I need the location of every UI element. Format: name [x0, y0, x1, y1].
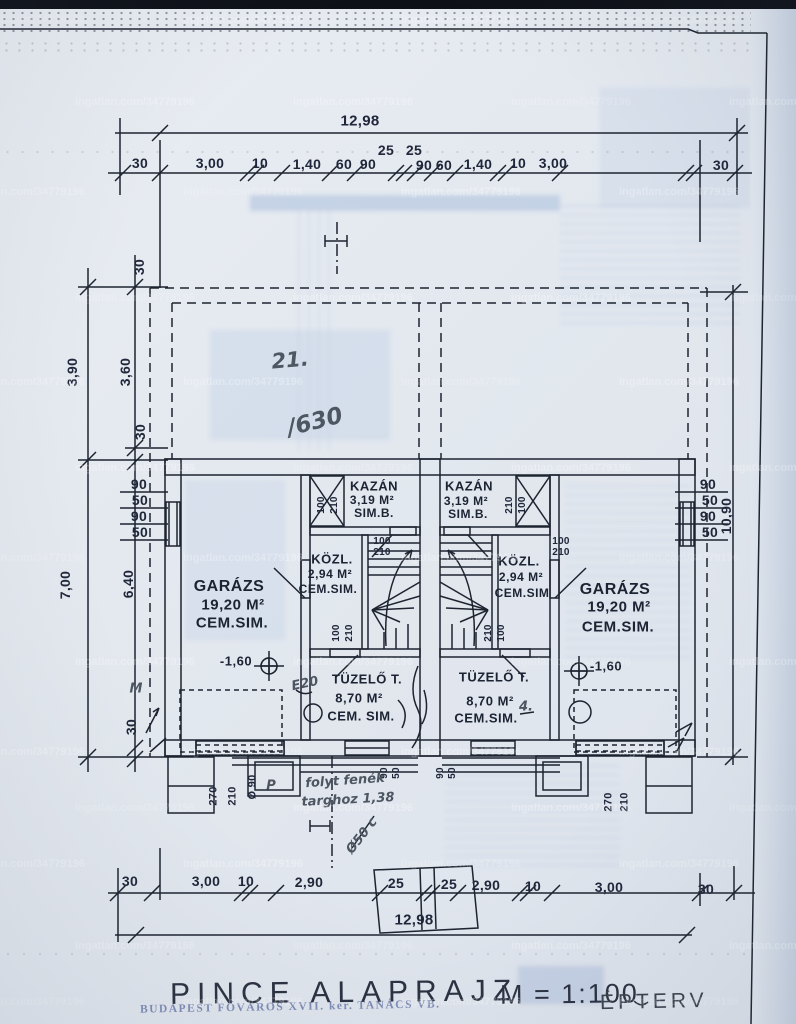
- dim-top: 10: [510, 156, 526, 170]
- dim-top: 10: [252, 156, 268, 170]
- dim-right-mini: 90: [700, 477, 716, 491]
- dim-left-inner: 30: [132, 259, 146, 275]
- room-garage-left-name: GARÁZS: [194, 579, 265, 595]
- room-garage-right-area: 19,20 M²: [587, 600, 650, 615]
- door-size: 100: [332, 624, 342, 642]
- room-kazan-left-area: 3,19 M²: [350, 494, 394, 506]
- dim-left-mini: 50: [132, 493, 148, 507]
- dim-top: 3,00: [539, 156, 567, 170]
- dim-top: 25: [406, 143, 422, 157]
- dim-bottom: 10: [238, 874, 254, 888]
- pencil-p-mark: P: [266, 779, 276, 794]
- plan-linework: [0, 0, 796, 1024]
- room-tuzelo-right-area: 8,70 M²: [466, 695, 514, 708]
- staircase-left: [368, 543, 420, 649]
- dim-top: 60: [436, 158, 452, 172]
- room-kozl-right-finish: CEM.SIM: [495, 587, 550, 599]
- door-size: 100: [497, 624, 507, 642]
- dim-left-mini: 90: [131, 477, 147, 491]
- door-size: 100: [518, 496, 528, 514]
- room-tuzelo-right-finish: CEM.SIM.: [454, 712, 517, 725]
- scan-fold-band: [0, 0, 796, 9]
- room-kozl-right-name: KÖZL.: [498, 555, 540, 568]
- dim-left-outer: 7,00: [58, 571, 72, 599]
- door-size: 100: [552, 537, 570, 547]
- room-tuzelo-right-name: TÜZELŐ T.: [459, 671, 529, 684]
- section-line-bottom: [310, 756, 332, 868]
- plot-number-note: 21.: [270, 346, 309, 373]
- dim-top: 1,40: [464, 157, 492, 171]
- garage-door-size: 270: [209, 786, 220, 805]
- level-marker-left: [254, 651, 284, 681]
- dim-top: 30: [132, 156, 148, 170]
- dim-left-mini: 50: [132, 525, 148, 539]
- door-size: 210: [373, 548, 391, 558]
- room-kozl-left-name: KÖZL.: [311, 553, 353, 566]
- blue-pen-marks: [668, 723, 692, 751]
- drawing-title: PINCE ALAPRAJZ: [170, 974, 518, 1012]
- dimension-left: [78, 255, 168, 772]
- dim-bottom-total: 12,98: [394, 913, 433, 928]
- dim-bottom: 25: [441, 877, 457, 891]
- room-kozl-left-area: 2,94 M²: [308, 568, 352, 580]
- dim-right-mini: 50: [702, 525, 718, 539]
- dim-bottom: 30: [698, 882, 714, 896]
- opening-diameter: Ø 90: [248, 774, 259, 799]
- garage-door-size: 210: [228, 786, 239, 805]
- room-kozl-right-area: 2,94 M²: [499, 571, 543, 583]
- level-garage-left: -1,60: [220, 655, 252, 668]
- dim-top: 60: [336, 157, 352, 171]
- door-size: 210: [505, 496, 515, 514]
- dim-bottom: 3,00: [595, 880, 623, 894]
- dim-bottom: 3,00: [192, 874, 220, 888]
- dim-left-mini: 90: [131, 509, 147, 523]
- dim-inner: 50: [448, 767, 458, 779]
- garage-door-size: 210: [620, 792, 631, 811]
- door-size: 210: [484, 624, 494, 642]
- dimension-bottom: [108, 848, 755, 943]
- room-tuzelo-left-area: 8,70 M²: [335, 692, 383, 705]
- dim-left-inner: 30: [133, 424, 147, 440]
- dim-bottom: 25: [388, 876, 404, 890]
- door-size: 210: [345, 624, 355, 642]
- door-size: 100: [373, 537, 391, 547]
- dim-left-outer: 3,90: [65, 358, 79, 386]
- pencil-four-mark: 4.: [519, 700, 533, 715]
- room-kazan-left-finish: SIM.B.: [354, 507, 394, 519]
- room-garage-left-finish: CEM.SIM.: [196, 616, 268, 631]
- dim-right-mini: 50: [702, 493, 718, 507]
- door-size: 100: [317, 496, 327, 514]
- dim-top: 1,40: [293, 157, 321, 171]
- upper-storey-dashed-outline: [150, 288, 707, 757]
- room-kazan-right-name: KAZÁN: [445, 480, 493, 493]
- garage-door-size: 270: [604, 792, 615, 811]
- dim-inner: 50: [392, 767, 402, 779]
- dim-top: 90: [360, 157, 376, 171]
- dim-top: 3,00: [196, 156, 224, 170]
- dimension-top: [108, 118, 752, 288]
- dim-bottom: 2,90: [295, 875, 323, 889]
- room-kazan-right-area: 3,19 M²: [444, 495, 488, 507]
- level-garage-right: -1,60: [590, 660, 622, 673]
- dim-bottom: 10: [525, 879, 541, 893]
- door-size: 210: [552, 548, 570, 558]
- dim-bottom: 2,90: [472, 878, 500, 892]
- dim-inner: 90: [436, 767, 446, 779]
- dim-right-total: 10,90: [719, 498, 733, 535]
- scanned-basement-floor-plan: 30 3,00 10 1,40 60 90 25 25 90 60 1,40 1…: [0, 0, 796, 1024]
- dim-top-total: 12,98: [340, 114, 379, 129]
- dim-top: 90: [416, 158, 432, 172]
- room-kazan-left-name: KAZÁN: [350, 480, 398, 493]
- dim-right-mini: 90: [700, 509, 716, 523]
- room-garage-right-finish: CEM.SIM.: [582, 620, 654, 635]
- dim-left-inner: 30: [124, 719, 138, 735]
- room-tuzelo-left-finish: CEM. SIM.: [327, 710, 394, 723]
- room-kozl-left-finish: CEM.SIM.: [299, 583, 358, 595]
- dim-left-inner: 6,40: [121, 570, 135, 598]
- dim-bottom: 30: [122, 874, 138, 888]
- room-kazan-right-finish: SIM.B.: [448, 508, 488, 520]
- dim-top: 30: [713, 158, 729, 172]
- design-firm: ÉPTERV: [600, 989, 708, 1015]
- pencil-m-mark: M: [130, 682, 143, 697]
- section-line-top: [325, 222, 347, 274]
- room-garage-left-area: 19,20 M²: [201, 598, 264, 613]
- dim-left-inner: 3,60: [118, 358, 132, 386]
- room-garage-right-name: GARÁZS: [580, 582, 651, 598]
- door-size: 210: [330, 496, 340, 514]
- room-tuzelo-left-name: TÜZELŐ T.: [332, 673, 402, 686]
- dim-top: 25: [378, 143, 394, 157]
